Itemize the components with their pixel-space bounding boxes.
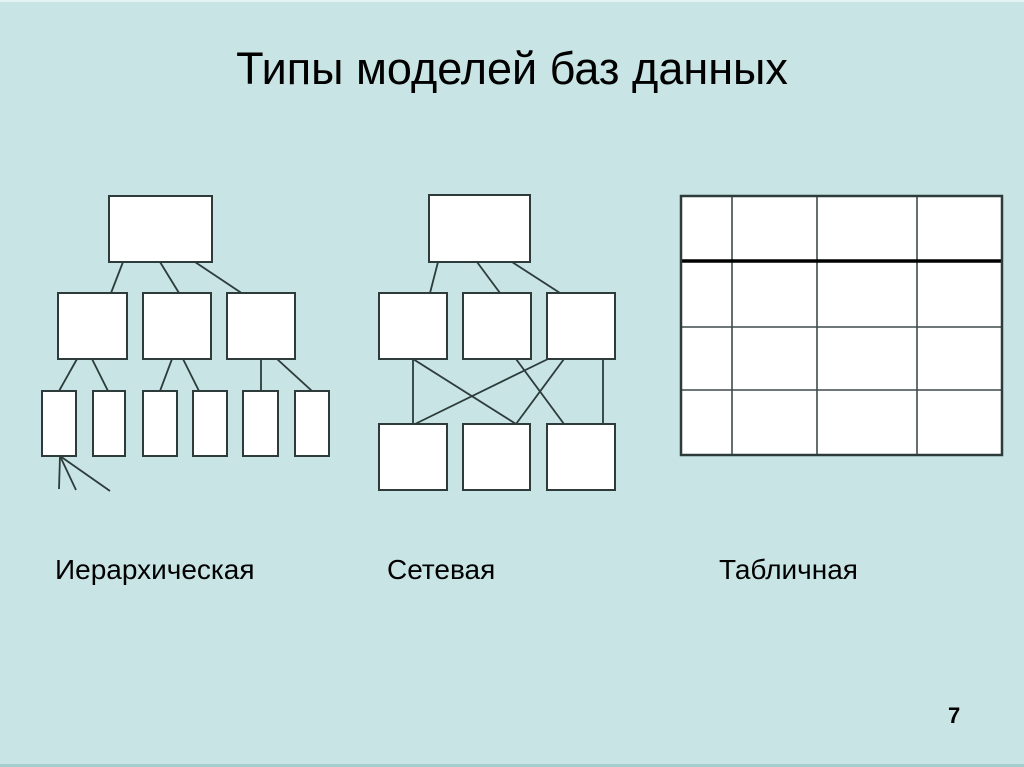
hierarchical-connector-line xyxy=(111,262,123,293)
network-box xyxy=(379,424,447,490)
table-background xyxy=(681,196,1002,455)
hierarchical-box xyxy=(93,391,125,456)
slide-background: Типы моделей баз данных Иерархическая Се… xyxy=(0,0,1024,767)
label-network-model: Сетевая xyxy=(387,554,495,586)
network-box xyxy=(379,293,447,359)
hierarchical-connector-line xyxy=(195,262,243,294)
network-connector-line xyxy=(512,262,560,293)
hierarchical-box xyxy=(227,293,295,359)
network-box xyxy=(463,293,531,359)
network-box xyxy=(547,293,615,359)
label-hierarchical-model: Иерархическая xyxy=(55,554,255,586)
network-connector-line xyxy=(413,359,516,424)
network-box xyxy=(429,195,530,262)
hierarchical-box xyxy=(143,293,211,359)
page-number: 7 xyxy=(948,703,960,729)
hierarchical-box xyxy=(295,391,329,456)
hierarchical-connector-line xyxy=(92,359,108,391)
hierarchical-box xyxy=(42,391,76,456)
hierarchical-connector-line xyxy=(59,359,77,391)
hierarchical-box xyxy=(193,391,227,456)
hierarchical-connector-line xyxy=(59,456,60,489)
network-box xyxy=(463,424,530,490)
hierarchical-box xyxy=(243,391,278,456)
hierarchical-box xyxy=(109,196,212,262)
diagrams-canvas xyxy=(0,0,1024,767)
network-box xyxy=(547,424,615,490)
hierarchical-connector-line xyxy=(160,359,172,391)
network-connector-line xyxy=(477,262,500,293)
label-tabular-model: Табличная xyxy=(719,554,858,586)
hierarchical-connector-line xyxy=(183,359,199,391)
network-connector-line xyxy=(430,262,438,293)
network-connector-line xyxy=(415,359,548,424)
hierarchical-connector-line xyxy=(277,359,312,391)
hierarchical-box xyxy=(58,293,127,359)
hierarchical-box xyxy=(143,391,177,456)
hierarchical-connector-line xyxy=(160,262,179,293)
